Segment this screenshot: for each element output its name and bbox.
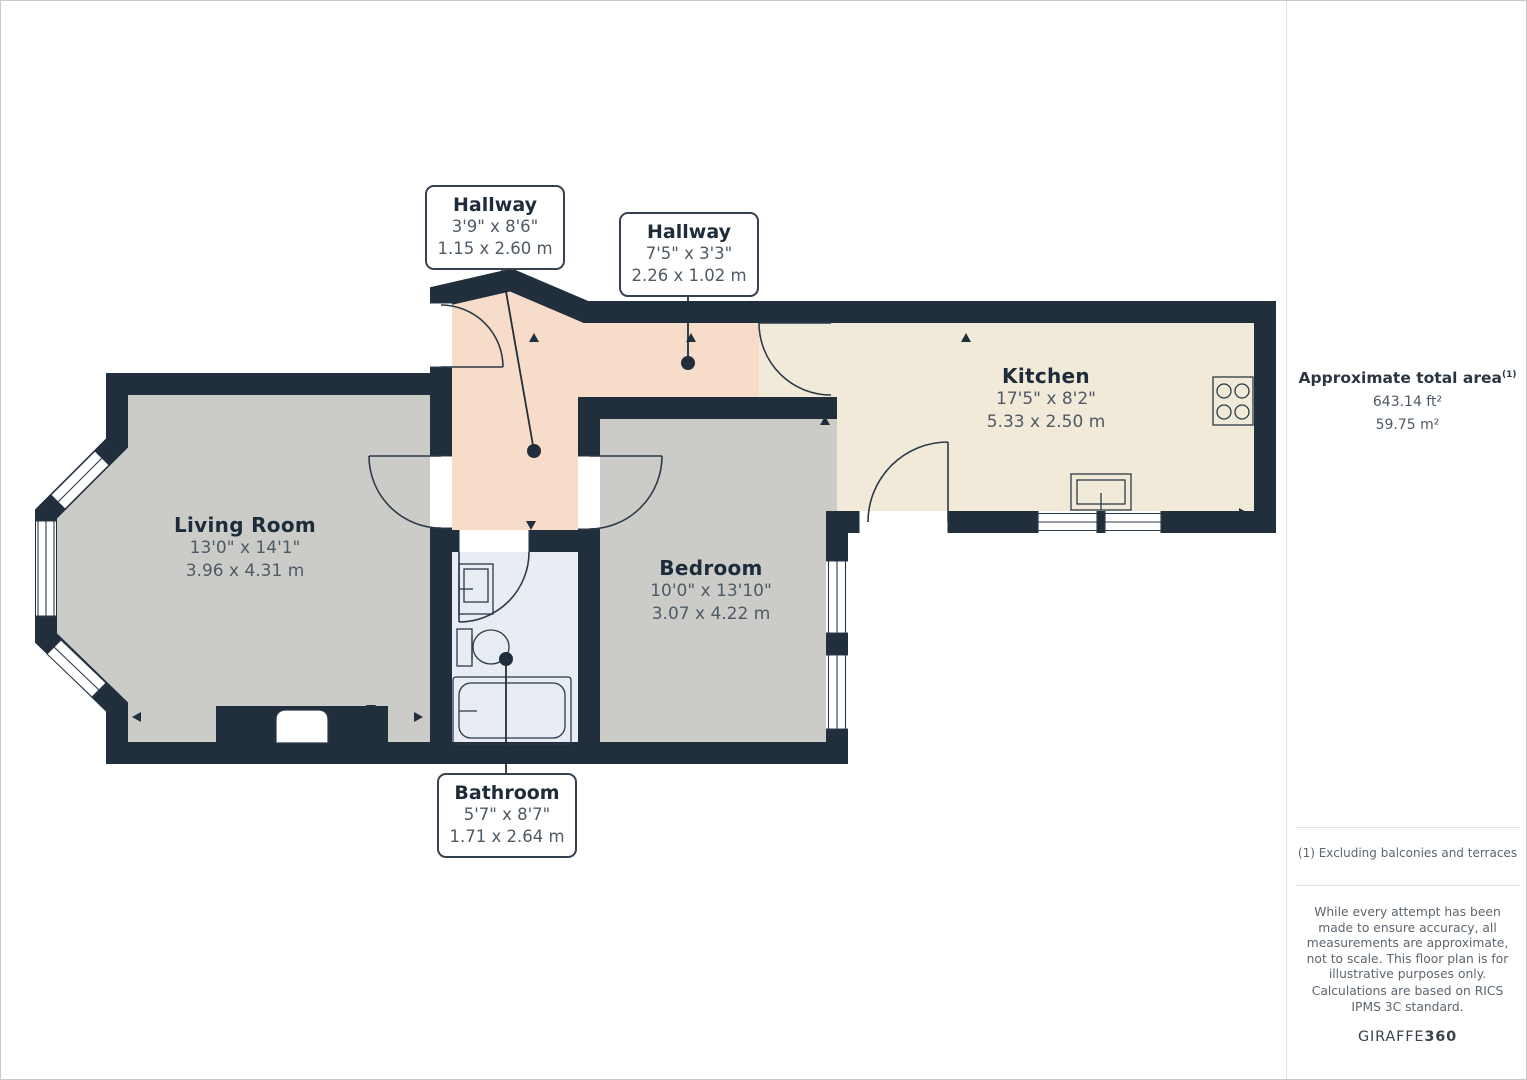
info-sidebar: Approximate total area(1) 643.14 ft² 59.…: [1286, 1, 1527, 1079]
total-area-ft: 643.14 ft²: [1287, 394, 1527, 410]
entry-door-opening: [430, 303, 452, 367]
bathroom-floor: [441, 541, 589, 753]
living-room-door-opening: [430, 456, 452, 528]
hallway1-floor: [441, 280, 589, 541]
hearth: [276, 710, 328, 743]
bathroom-name: Bathroom: [443, 782, 571, 804]
hallway2-callout: Hallway 7'5" x 3'3" 2.26 x 1.02 m: [619, 212, 759, 297]
bathroom-dims-imperial: 5'7" x 8'7": [443, 804, 571, 826]
bathroom-leader-dot: [499, 652, 513, 666]
area-footnote: (1) Excluding balconies and terraces: [1287, 846, 1527, 860]
disclaimer-accuracy: While every attempt has been made to ens…: [1305, 905, 1511, 983]
bedroom-floor: [589, 408, 837, 753]
total-area-title-text: Approximate total area: [1299, 369, 1502, 387]
total-area-title: Approximate total area(1): [1287, 369, 1527, 387]
giraffe360-logo-bold: 360: [1424, 1029, 1457, 1045]
giraffe360-logo: GIRAFFE360: [1287, 1029, 1527, 1045]
floorplan-drawing: [1, 1, 1286, 1079]
disclaimer-standard: Calculations are based on RICS IPMS 3C s…: [1305, 984, 1511, 1015]
sidebar-divider-top: [1295, 827, 1520, 828]
hallway1-dims-imperial: 3'9" x 8'6": [431, 216, 559, 238]
hallway1-callout: Hallway 3'9" x 8'6" 1.15 x 2.60 m: [425, 185, 565, 270]
hallway1-leader-dot: [527, 444, 541, 458]
hallway2-floor: [589, 312, 759, 408]
hallway2-name: Hallway: [625, 221, 753, 243]
floorplan-canvas: Living Room 13'0" x 14'1" 3.96 x 4.31 m …: [1, 1, 1286, 1079]
bathroom-door-opening: [459, 530, 529, 552]
sidebar-divider-bottom: [1295, 885, 1520, 886]
bedroom-door-opening: [578, 456, 600, 529]
bathroom-callout: Bathroom 5'7" x 8'7" 1.71 x 2.64 m: [437, 773, 577, 858]
total-area-footnote-marker: (1): [1502, 370, 1517, 380]
hallway1-dims-metric: 1.15 x 2.60 m: [431, 238, 559, 260]
floorplan-page: Living Room 13'0" x 14'1" 3.96 x 4.31 m …: [0, 0, 1527, 1080]
hallway2-dims-imperial: 7'5" x 3'3": [625, 243, 753, 265]
hallway1-name: Hallway: [431, 194, 559, 216]
total-area-m: 59.75 m²: [1287, 417, 1527, 433]
total-area-block: Approximate total area(1) 643.14 ft² 59.…: [1287, 369, 1527, 433]
bathroom-dims-metric: 1.71 x 2.64 m: [443, 826, 571, 848]
hallway2-leader-dot: [681, 356, 695, 370]
giraffe360-logo-regular: GIRAFFE: [1358, 1029, 1424, 1045]
kitchen-exit-opening: [859, 511, 948, 533]
hallway2-dims-metric: 2.26 x 1.02 m: [625, 265, 753, 287]
